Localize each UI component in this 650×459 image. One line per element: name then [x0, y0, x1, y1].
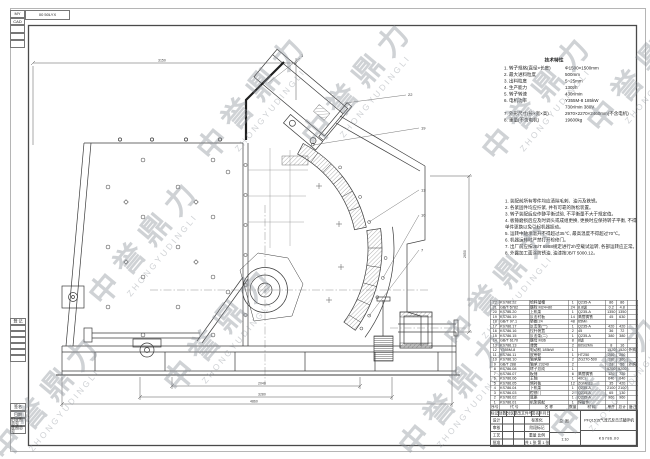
drawing-number: KS786.00 [581, 431, 638, 447]
header-cell: 数量 [568, 405, 577, 410]
corner-cell: CAD [10, 18, 25, 26]
dim-label: 3280 [258, 393, 266, 397]
feed-chute [246, 46, 352, 165]
callout-number: 1 [301, 53, 304, 58]
dimension-bottom [60, 336, 454, 407]
callout-number: 7 [421, 248, 424, 253]
callout-number: 13 [421, 188, 426, 193]
corner-code-cell: 00 50LYX [25, 10, 70, 20]
spec-title: 技术特性 [504, 56, 604, 63]
register-cell: 登 记 [10, 318, 26, 325]
dim-label: 2040 [258, 382, 266, 386]
aux-label: 重量 比例 [525, 432, 550, 440]
drawing-texts: 3150 2040 3280 4860 2650 1 22 19 13 10 7 [158, 53, 467, 404]
corner-cell [10, 40, 25, 48]
parts-table-header: 序号 代 号 名 称 数量 材 料 单件 总计 备注 [490, 405, 638, 410]
crusher-section-view [31, 46, 472, 407]
table-header-row: 序号 代 号 名 称 数量 材 料 单件 总计 备注 [490, 405, 638, 410]
note-line: 4. 板锤磨损后应及时调头或成组更换, 更换时应保持转子平衡, 不得单件更换以免… [505, 218, 640, 231]
view-label: 总图 [550, 411, 581, 433]
corner-cell [10, 25, 25, 33]
scale-cell: 1:10 [550, 433, 581, 447]
product-name: PFQ1515气流式反击式破碎机 [581, 411, 638, 431]
callout-number: 10 [421, 213, 426, 218]
register-cell [10, 355, 26, 362]
notes: 1. 装配前所有零件均应清除毛刺、油污及铁锈。 2. 各紧固件均应拧紧, 并有可… [505, 198, 638, 266]
dim-label: 3150 [158, 59, 166, 63]
header-cell: 单件 [606, 405, 617, 410]
callout-number: 22 [408, 92, 413, 97]
corner-cell: MY [10, 10, 25, 18]
corner-cell [10, 33, 25, 41]
parts-table: 22KS786.22给料溜槽1Q235-A868621GB/T 5782螺栓 M… [490, 300, 638, 410]
sign-label: 审核 [491, 424, 503, 432]
left-members [62, 277, 248, 357]
spec-item: 8. 重量(不含电机)19600kg [504, 117, 638, 124]
header-cell: 材 料 [577, 405, 606, 410]
header-cell: 序号 [490, 405, 499, 410]
header-cell: 代 号 [499, 405, 529, 410]
sign-label: 批准 [491, 439, 503, 447]
dim-label: 4860 [250, 400, 258, 404]
strip-label-cell: 签名 [10, 403, 26, 411]
header-cell: 总计 [617, 405, 628, 410]
impact-liner [298, 143, 394, 337]
base-frame [56, 332, 460, 375]
note-line: 8. 外露加工面涂防锈油, 油漆按JB/T 5000.12。 [505, 250, 640, 257]
aux-label: 共 1 张 第 1 张 [525, 439, 550, 447]
sign-label: 工艺 [491, 432, 503, 440]
dim-label: 2650 [463, 250, 467, 258]
dimension-top [31, 58, 298, 145]
parts-table-body: 22KS786.22给料溜槽1Q235-A868621GB/T 5782螺栓 M… [490, 300, 638, 405]
aux-label: 阶段标记 [525, 424, 550, 432]
header-cell: 备注 [628, 405, 638, 410]
sign-label: 设计 [491, 417, 503, 425]
drawing-sheet: 3150 2040 3280 4860 2650 1 22 19 13 10 7… [0, 0, 650, 459]
callout-number: 19 [421, 126, 426, 131]
spring-assembly [374, 297, 393, 361]
header-cell: 名 称 [529, 405, 568, 410]
strip-label-cell: 底图总号 [10, 426, 26, 434]
aux-label: 标准化 [525, 417, 550, 425]
spec-list: 技术特性 1. 转子规格(直径×长度)Φ1500×1500mm 2. 最大进料粒… [504, 56, 638, 142]
title-block: 标记 处数 分区 更改文件号 签名 年月日 设计 标准化 审核 [490, 410, 637, 446]
